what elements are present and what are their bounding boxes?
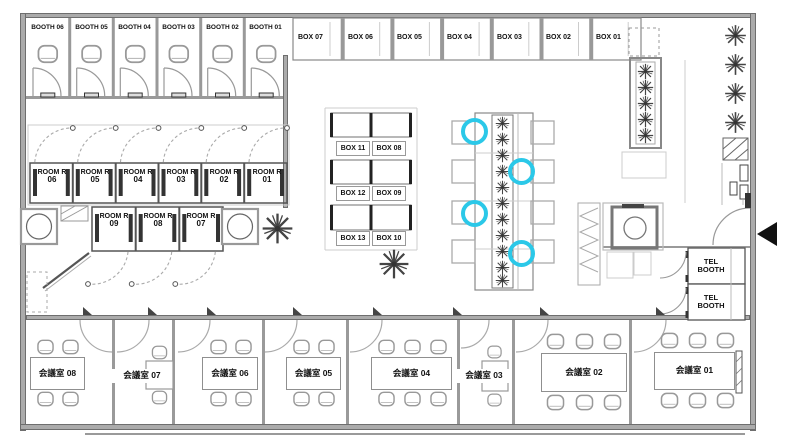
room-08-label: ROOM R08	[145, 210, 171, 232]
room-09-label: ROOM R09	[101, 210, 127, 232]
center-box-desk-ends	[330, 113, 412, 230]
diagonal-wall	[43, 253, 91, 291]
box-09-label: BOX 09	[372, 186, 406, 201]
highlighted-seat-4[interactable]	[508, 240, 535, 267]
plant-icon	[263, 214, 293, 244]
tel-booth-1-label: TELBOOTH	[690, 251, 732, 281]
meeting-room-08-table: 会議室 08	[30, 357, 85, 390]
hatched-box	[61, 206, 88, 221]
room-07-label: ROOM R07	[188, 210, 214, 232]
box-08-label: BOX 08	[372, 141, 406, 156]
office-floor-plan: BOOTH 06 BOOTH 05 BOOTH 04 BOOTH 03 BOOT…	[0, 0, 800, 445]
shelf-left	[578, 203, 600, 285]
box-06-label: BOX 06	[345, 32, 389, 44]
booth-06-label: BOOTH 06	[26, 22, 69, 34]
plant-icon	[380, 250, 409, 279]
planter-plants	[496, 117, 510, 288]
room-05-label: ROOM R05	[82, 166, 108, 188]
box-03-label: BOX 03	[494, 32, 538, 44]
door-leaf-marks	[83, 307, 665, 315]
room-lower-door-arcs	[88, 252, 215, 284]
meeting-room-07-label: 会議室 07	[112, 369, 172, 383]
entrance-door	[713, 193, 751, 245]
booth-04-label: BOOTH 04	[113, 22, 156, 34]
booth-01-label: BOOTH 01	[244, 22, 287, 34]
meeting-room-05-table: 会議室 05	[286, 357, 341, 390]
room-upper-door-arcs	[35, 128, 287, 162]
box-10-label: BOX 10	[372, 231, 406, 246]
booth-03-label: BOOTH 03	[157, 22, 200, 34]
tel-booth-door-arcs	[660, 252, 686, 314]
center-box-group	[325, 108, 417, 250]
room-04-label: ROOM R04	[125, 166, 151, 188]
entrance-arrow-icon	[757, 222, 777, 246]
booth-02-label: BOOTH 02	[201, 22, 244, 34]
meeting-room-02-table: 会議室 02	[541, 353, 627, 392]
column-right	[222, 209, 258, 244]
kitchen-fixtures	[722, 163, 748, 205]
highlighted-seat-3[interactable]	[461, 200, 488, 227]
kitchen-island	[578, 203, 663, 285]
box-12-label: BOX 12	[336, 186, 370, 201]
meeting-room-04-table: 会議室 04	[371, 357, 452, 390]
box-11-label: BOX 11	[336, 141, 370, 156]
box-13-label: BOX 13	[336, 231, 370, 246]
booth-05-label: BOOTH 05	[70, 22, 113, 34]
room-02-label: ROOM R02	[211, 166, 237, 188]
box-01-label: BOX 01	[593, 32, 637, 44]
box-02-label: BOX 02	[543, 32, 587, 44]
column-left	[21, 209, 57, 244]
room-upper-door-hinges	[70, 126, 289, 131]
storage-dashed	[27, 272, 47, 312]
top-planter	[629, 28, 661, 148]
room-01-label: ROOM R01	[254, 166, 280, 188]
meeting-room-01-table: 会議室 01	[654, 352, 735, 390]
meeting-room-03-label: 会議室 03	[456, 369, 512, 383]
room-06-label: ROOM R06	[39, 166, 65, 188]
rooms-upper-block	[28, 125, 289, 205]
box-04-label: BOX 04	[444, 32, 488, 44]
box-05-label: BOX 05	[394, 32, 438, 44]
bench	[622, 152, 666, 178]
tel-booth-2-label: TELBOOTH	[690, 287, 732, 317]
meeting-room-06-table: 会議室 06	[202, 357, 258, 390]
highlighted-seat-1[interactable]	[461, 118, 488, 145]
highlighted-seat-2[interactable]	[508, 158, 535, 185]
room-03-label: ROOM R03	[168, 166, 194, 188]
right-wall-plants	[723, 25, 748, 160]
box-07-label: BOX 07	[295, 32, 339, 44]
